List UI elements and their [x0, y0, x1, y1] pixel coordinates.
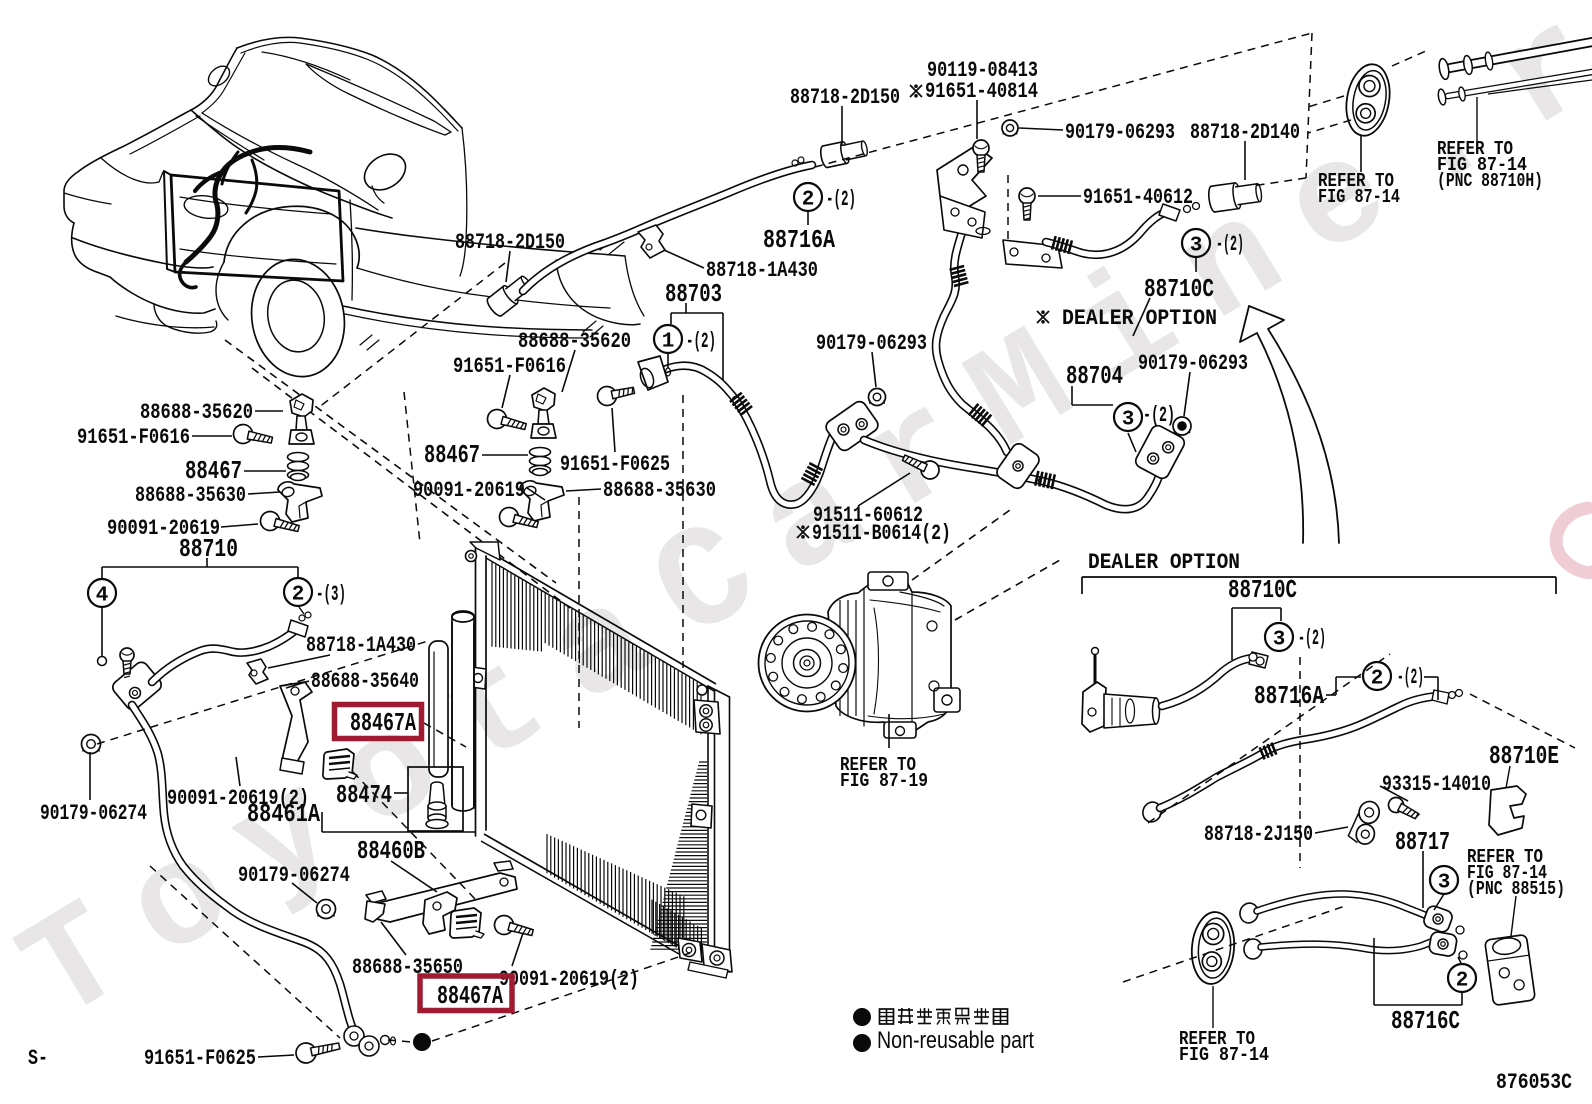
svg-text:2: 2: [1371, 668, 1384, 691]
svg-text:88461A: 88461A: [247, 799, 320, 829]
svg-text:88718-1A430: 88718-1A430: [306, 633, 416, 658]
svg-text:91651-F0625: 91651-F0625: [144, 1046, 256, 1071]
svg-text:91651-F0625: 91651-F0625: [560, 452, 670, 477]
svg-text:88710: 88710: [179, 534, 238, 564]
svg-text:3: 3: [1273, 629, 1286, 652]
svg-text:-(2): -(2): [1298, 626, 1326, 651]
svg-text:3: 3: [1190, 235, 1203, 258]
svg-text:2: 2: [802, 189, 815, 212]
svg-text:91511-B0614(2): 91511-B0614(2): [812, 521, 951, 546]
svg-text:88688-35620: 88688-35620: [140, 400, 253, 425]
svg-text:1: 1: [662, 331, 675, 354]
svg-text:91651-40612: 91651-40612: [1083, 185, 1193, 210]
svg-text:88688-35630: 88688-35630: [135, 483, 246, 508]
svg-text:-(2): -(2): [1216, 232, 1244, 257]
svg-text:91651-40814: 91651-40814: [925, 79, 1038, 104]
svg-text:876053C: 876053C: [1496, 1070, 1572, 1095]
svg-text:88704: 88704: [1066, 361, 1123, 391]
svg-text:91651-F0616: 91651-F0616: [77, 425, 190, 450]
svg-text:88710C: 88710C: [1228, 575, 1297, 605]
svg-text:88474: 88474: [336, 780, 392, 810]
svg-text:(PNC 88515): (PNC 88515): [1467, 878, 1565, 900]
svg-text:-(2): -(2): [826, 187, 856, 212]
svg-text:(PNC 88710H): (PNC 88710H): [1437, 170, 1543, 192]
svg-text:88703: 88703: [665, 279, 722, 309]
svg-text:88718-1A430: 88718-1A430: [706, 258, 818, 283]
svg-text:88716A: 88716A: [763, 225, 835, 255]
svg-text:S-: S-: [28, 1046, 48, 1071]
svg-text:88718-2D150: 88718-2D150: [790, 85, 900, 110]
svg-text:88710C: 88710C: [1144, 274, 1214, 304]
svg-text:DEALER OPTION: DEALER OPTION: [1088, 550, 1240, 575]
svg-text:88718-2J150: 88718-2J150: [1204, 822, 1313, 847]
svg-text:2: 2: [292, 584, 305, 607]
svg-text:DEALER OPTION: DEALER OPTION: [1062, 306, 1217, 331]
svg-text:3: 3: [1122, 409, 1135, 432]
svg-text:Non-reusable part: Non-reusable part: [877, 1027, 1034, 1054]
svg-text:FIG 87-19: FIG 87-19: [840, 770, 928, 792]
svg-text:88467A: 88467A: [350, 708, 416, 738]
svg-text:90091-20619(2): 90091-20619(2): [499, 967, 639, 992]
svg-text:88716C: 88716C: [1391, 1006, 1460, 1036]
svg-text:90179-06274: 90179-06274: [40, 801, 147, 826]
svg-text:-(3): -(3): [316, 582, 346, 607]
svg-text:-(2): -(2): [1143, 403, 1175, 428]
svg-text:88688-35640: 88688-35640: [311, 669, 419, 694]
svg-text:88467: 88467: [424, 440, 480, 470]
svg-text:88467A: 88467A: [437, 981, 503, 1011]
svg-text:3: 3: [1438, 872, 1451, 895]
svg-text:88716A: 88716A: [1254, 681, 1324, 711]
svg-text:-(2): -(2): [1397, 665, 1424, 690]
svg-text:FIG 87-14: FIG 87-14: [1318, 186, 1400, 208]
svg-text:90179-06293: 90179-06293: [1065, 120, 1175, 145]
svg-text:2: 2: [1456, 970, 1469, 993]
svg-text:88688-35630: 88688-35630: [603, 478, 716, 503]
svg-text:-(2): -(2): [686, 329, 716, 354]
svg-text:90179-06293: 90179-06293: [1138, 351, 1248, 376]
svg-text:4: 4: [96, 585, 109, 608]
svg-text:88710E: 88710E: [1489, 741, 1559, 771]
svg-text:FIG 87-14: FIG 87-14: [1179, 1044, 1269, 1066]
svg-text:93315-14010: 93315-14010: [1382, 772, 1491, 797]
svg-text:88467: 88467: [185, 456, 242, 486]
svg-text:90091-20619: 90091-20619: [413, 478, 525, 503]
